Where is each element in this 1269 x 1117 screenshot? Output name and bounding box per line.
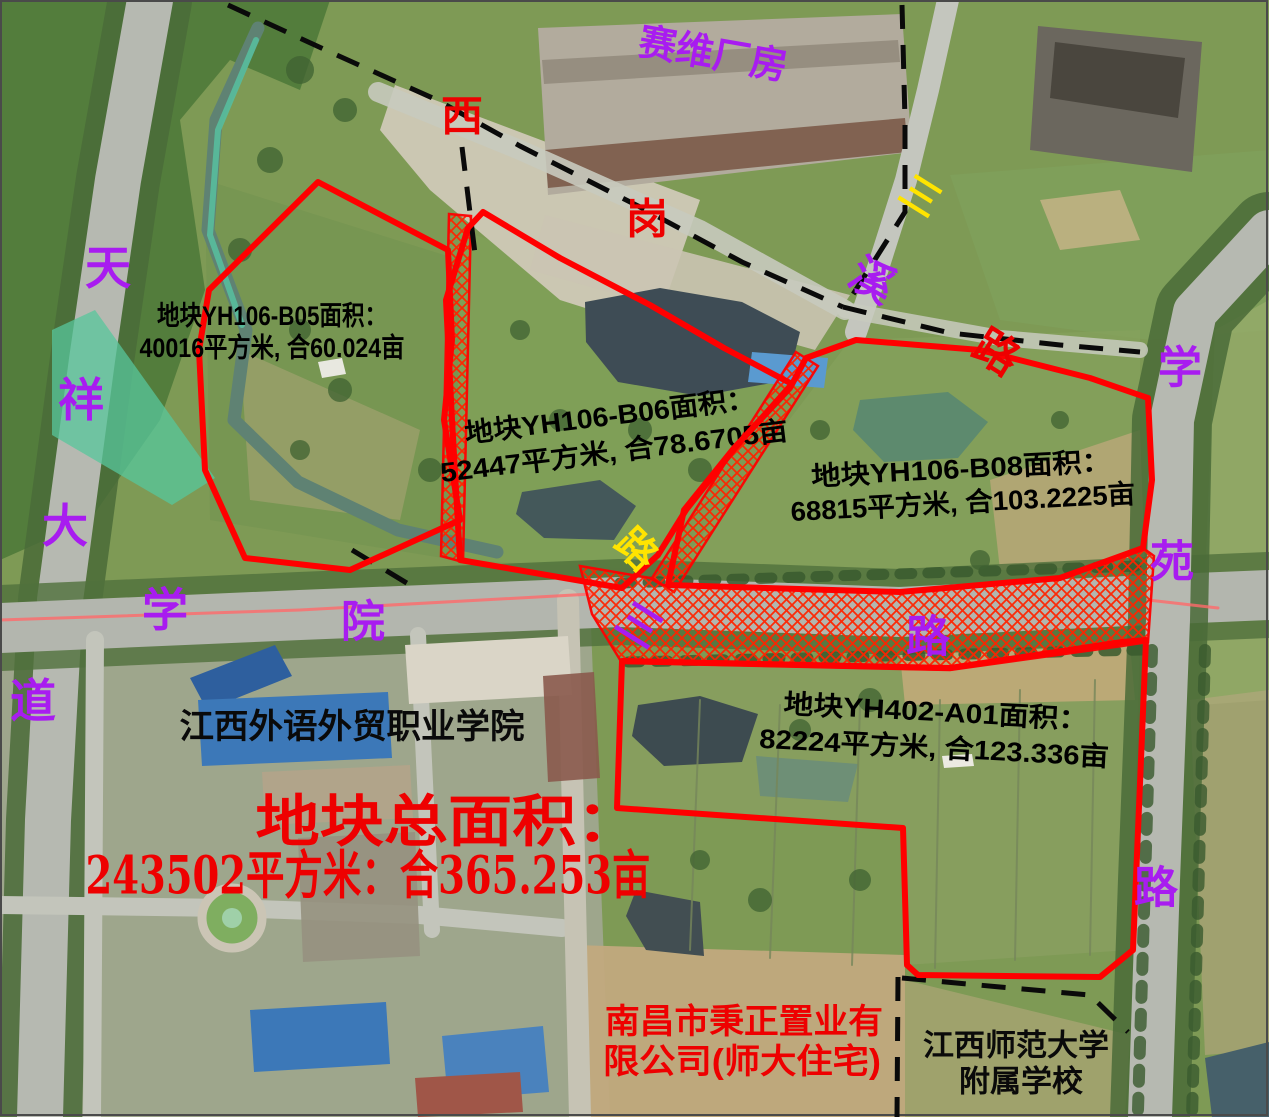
pond-a01-2 — [756, 756, 858, 802]
parcel-label-YH106-B05-line1: 地块YH106-B05面积： — [157, 301, 387, 331]
total-area-line2: 243502平方米：合365.253亩 — [86, 846, 651, 907]
road-char-xueyuanlu-3: 路 — [1134, 864, 1179, 913]
roundabout-center — [222, 908, 242, 928]
tree-19 — [748, 888, 772, 912]
road-char-xueyuanlu-2: 苑 — [1150, 538, 1194, 587]
tree-9 — [510, 320, 530, 340]
road-char-tianxiang-1: 天 — [85, 242, 131, 294]
building-red-roof — [415, 1072, 523, 1117]
developer-label-line2: 限公司(师大住宅) — [603, 1042, 881, 1081]
tree-14 — [970, 550, 990, 570]
tree-1 — [286, 56, 314, 84]
tree-6 — [328, 378, 352, 402]
road-char-xueyuan3-1: 学 — [142, 584, 188, 636]
road-char-xigang-1: 西 — [441, 93, 483, 140]
college-label: 江西外语外贸职业学院 — [180, 707, 525, 746]
building-red-mid — [543, 672, 600, 782]
tree-3 — [257, 147, 283, 173]
road-char-xueyuanlu-1: 学 — [1158, 344, 1202, 393]
tree-20 — [849, 869, 871, 891]
road-char-xigang-2: 岗 — [626, 196, 668, 243]
tree-8 — [290, 440, 310, 460]
tree-18 — [690, 850, 710, 870]
tree-13 — [810, 420, 830, 440]
road-char-tianxiang-2: 祥 — [58, 374, 104, 426]
parcel-label-YH106-B05-line2: 40016平方米, 合60.024亩 — [140, 332, 405, 363]
building-blue-south1 — [250, 1002, 390, 1072]
tree-15 — [1051, 411, 1069, 429]
road-char-tianxiang-4: 道 — [10, 675, 56, 727]
aerial-parcel-map: 地块YH106-B05面积：40016平方米, 合60.024亩地块YH106-… — [0, 0, 1269, 1117]
road-char-tianxiang-3: 大 — [42, 500, 88, 552]
parcel-map-svg: 地块YH106-B05面积：40016平方米, 合60.024亩地块YH106-… — [0, 0, 1269, 1117]
school-label-line2: 附属学校 — [959, 1065, 1083, 1099]
developer-label-line1: 南昌市秉正置业有 — [605, 1002, 883, 1041]
tree-2 — [333, 98, 357, 122]
school-label-line1: 江西师范大学 — [923, 1029, 1109, 1063]
road-char-xueyuan3-4: 路 — [906, 613, 951, 662]
road-char-xueyuan3-2: 院 — [341, 598, 385, 647]
